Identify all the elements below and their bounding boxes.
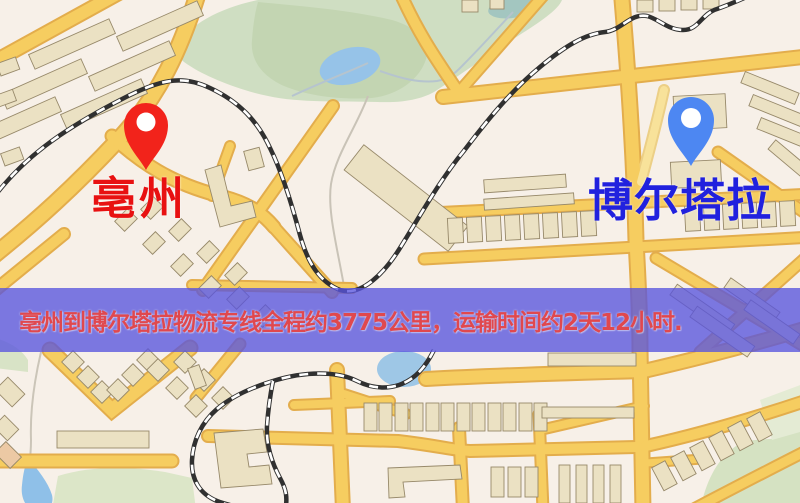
origin-pin-hole <box>137 113 156 132</box>
destination-pin-hole <box>681 108 701 128</box>
route-info-banner: 亳州到博尔塔拉物流专线全程约3775公里，运输时间约2天12小时. <box>0 288 800 352</box>
route-info-text: 亳州到博尔塔拉物流专线全程约3775公里，运输时间约2天12小时. <box>0 303 682 337</box>
map-canvas[interactable]: 亳州 博尔塔拉 亳州到博尔塔拉物流专线全程约3775公里，运输时间约2天12小时… <box>0 0 800 503</box>
destination-pin[interactable] <box>668 97 714 166</box>
map-graphic <box>0 0 800 503</box>
